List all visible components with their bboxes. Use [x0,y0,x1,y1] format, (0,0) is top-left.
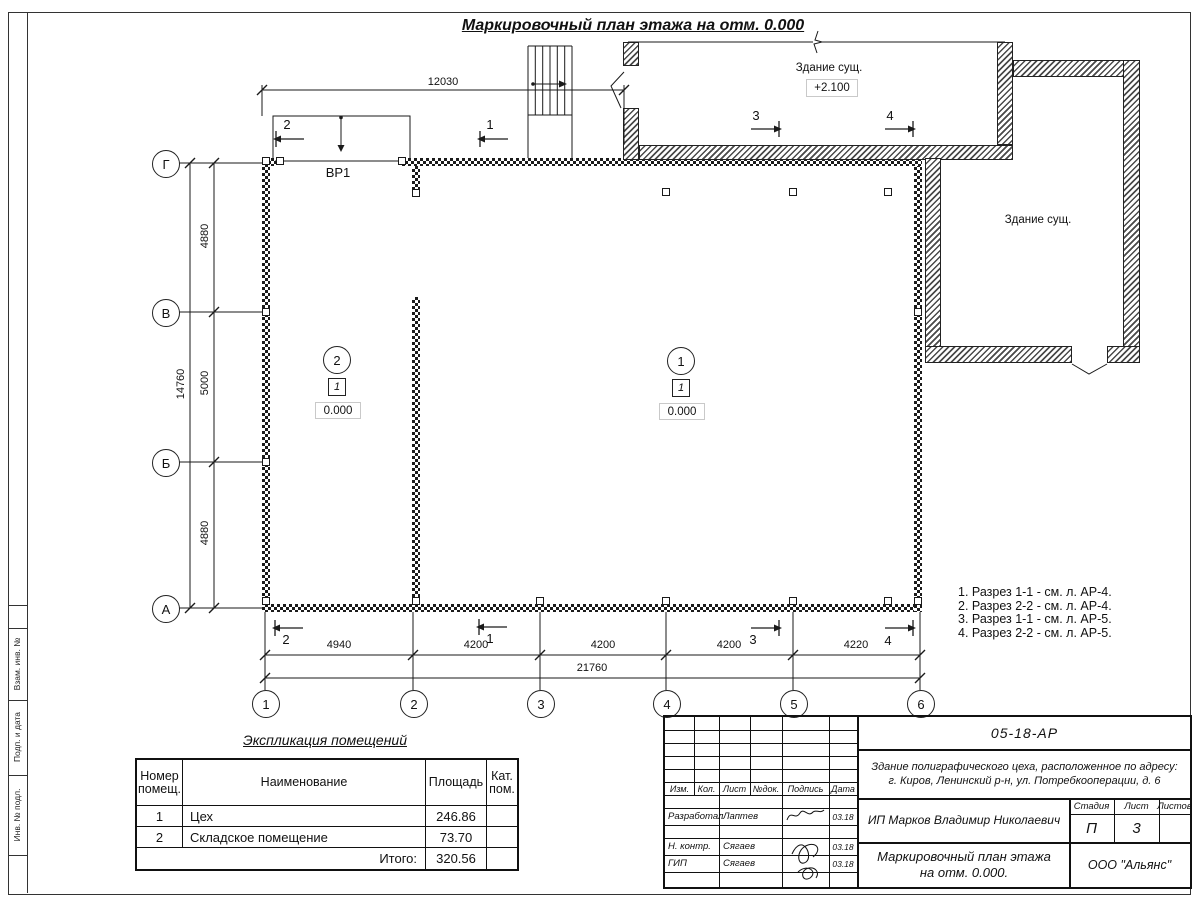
signature-icon [782,806,829,886]
dim-left-3: 4880 [199,503,211,563]
explication-table: Номер помещ. Наименование Площадь Кат. п… [135,758,519,871]
gate-label: ВР1 [313,165,363,180]
sheet-value: 3 [1114,814,1159,842]
room-number-bubble: 1 [667,347,695,375]
axis-col-1: 1 [252,690,280,718]
role-label: Разработал [668,808,719,825]
col-list: Лист [719,782,750,795]
total-label: Итого: [137,848,425,869]
stair-icon [528,46,572,158]
room-number-bubble: 2 [323,346,351,374]
stage-value: П [1069,814,1114,842]
cell-area: 246.86 [426,806,486,826]
sheet-name: Маркировочный план этажа на отм. 0.000. [859,842,1069,887]
column-markers [263,158,922,605]
sheets-header: Листов [1159,798,1190,814]
axis-col-6: 6 [907,690,935,718]
cell-area: 73.70 [426,827,486,847]
cell-category [487,827,517,847]
section-mark-label: 4 [880,108,900,123]
role-name: Лаптев [723,808,782,825]
doc-number: 05-18-АР [859,717,1190,749]
section-mark-label: 1 [480,631,500,646]
section-mark-label: 2 [276,632,296,647]
dim-bottom-1: 4940 [309,639,369,651]
axis-col-5: 5 [780,690,808,718]
role-label: ГИП [668,855,719,872]
axis-col-4: 4 [653,690,681,718]
explication-title: Экспликация помещений [225,732,425,748]
dim-bottom-total: 21760 [562,662,622,674]
cell-name: Складское помещение [183,827,425,847]
title-block: Изм. Кол. Лист №док. Подпись Дата Разраб… [663,715,1192,889]
axis-row-b: Б [152,449,180,477]
existing-building-right-label: Здание сущ. [988,214,1088,226]
col-sign: Подпись [782,782,829,795]
axis-row-a: А [152,595,180,623]
role-date: 03.18 [829,855,857,872]
room-elevation: 0.000 [659,403,705,420]
axis-row-v: В [152,299,180,327]
dim-left-2: 5000 [199,353,211,413]
role-date: 03.18 [829,808,857,825]
axis-col-2: 2 [400,690,428,718]
role-name: Сягаев [723,838,782,855]
section-mark-label: 2 [277,117,297,132]
col-izm: Изм. [665,782,694,795]
section-mark-label: 3 [746,108,766,123]
axis-col-3: 3 [527,690,555,718]
note-line: 2. Разрез 2-2 - см. л. АР-4. [958,600,1112,614]
col-header-name: Наименование [183,760,425,805]
sheet-header: Лист [1114,798,1159,814]
project-description: Здание полиграфического цеха, расположен… [859,749,1190,798]
section-mark-label: 4 [878,633,898,648]
axis-and-dimension-lines [179,31,1005,690]
col-doc: №док. [750,782,782,795]
dimension-ticks [185,85,925,683]
company-name: ООО "Альянс" [1069,842,1190,887]
dim-bottom-5: 4220 [826,639,886,651]
note-line: 1. Разрез 1-1 - см. л. АР-4. [958,586,1112,600]
role-label: Н. контр. [668,838,719,855]
cell-name: Цех [183,806,425,826]
col-header-category: Кат. пом. [487,760,517,805]
section-arrows [275,121,913,636]
section-mark-label: 1 [480,117,500,132]
dim-bottom-3: 4200 [573,639,633,651]
col-kol: Кол. [694,782,719,795]
room-elevation: 0.000 [315,402,361,419]
room-type-mark: 1 [672,379,690,397]
existing-building-top-elevation: +2.100 [806,79,858,97]
dim-left-1: 4880 [199,206,211,266]
cell-number: 2 [137,827,182,847]
cell-category [487,806,517,826]
cell-number: 1 [137,806,182,826]
section-arrow-heads [272,126,916,632]
room-type-mark: 1 [328,378,346,396]
existing-building-top-label: Здание сущ. [779,62,879,74]
axis-row-g: Г [152,150,180,178]
dim-top-width: 12030 [413,76,473,88]
role-date: 03.18 [829,838,857,855]
drawing-sheet: Взам. инв. № Подп. и дата Инв. № подл. М… [0,0,1200,900]
sheets-value [1159,814,1190,842]
note-line: 3. Разрез 1-1 - см. л. АР-5. [958,613,1112,627]
col-date: Дата [829,782,857,795]
client-name: ИП Марков Владимир Николаевич [859,798,1069,842]
section-mark-label: 3 [743,632,763,647]
total-category [487,848,517,869]
dim-left-total: 14760 [175,354,187,414]
col-header-number: Номер помещ. [137,760,182,805]
section-notes: 1. Разрез 1-1 - см. л. АР-4. 2. Разрез 2… [958,586,1112,640]
col-header-area: Площадь [426,760,486,805]
note-line: 4. Разрез 2-2 - см. л. АР-5. [958,627,1112,641]
total-area: 320.56 [426,848,486,869]
stage-header: Стадия [1069,798,1114,814]
role-name: Сягаев [723,855,782,872]
